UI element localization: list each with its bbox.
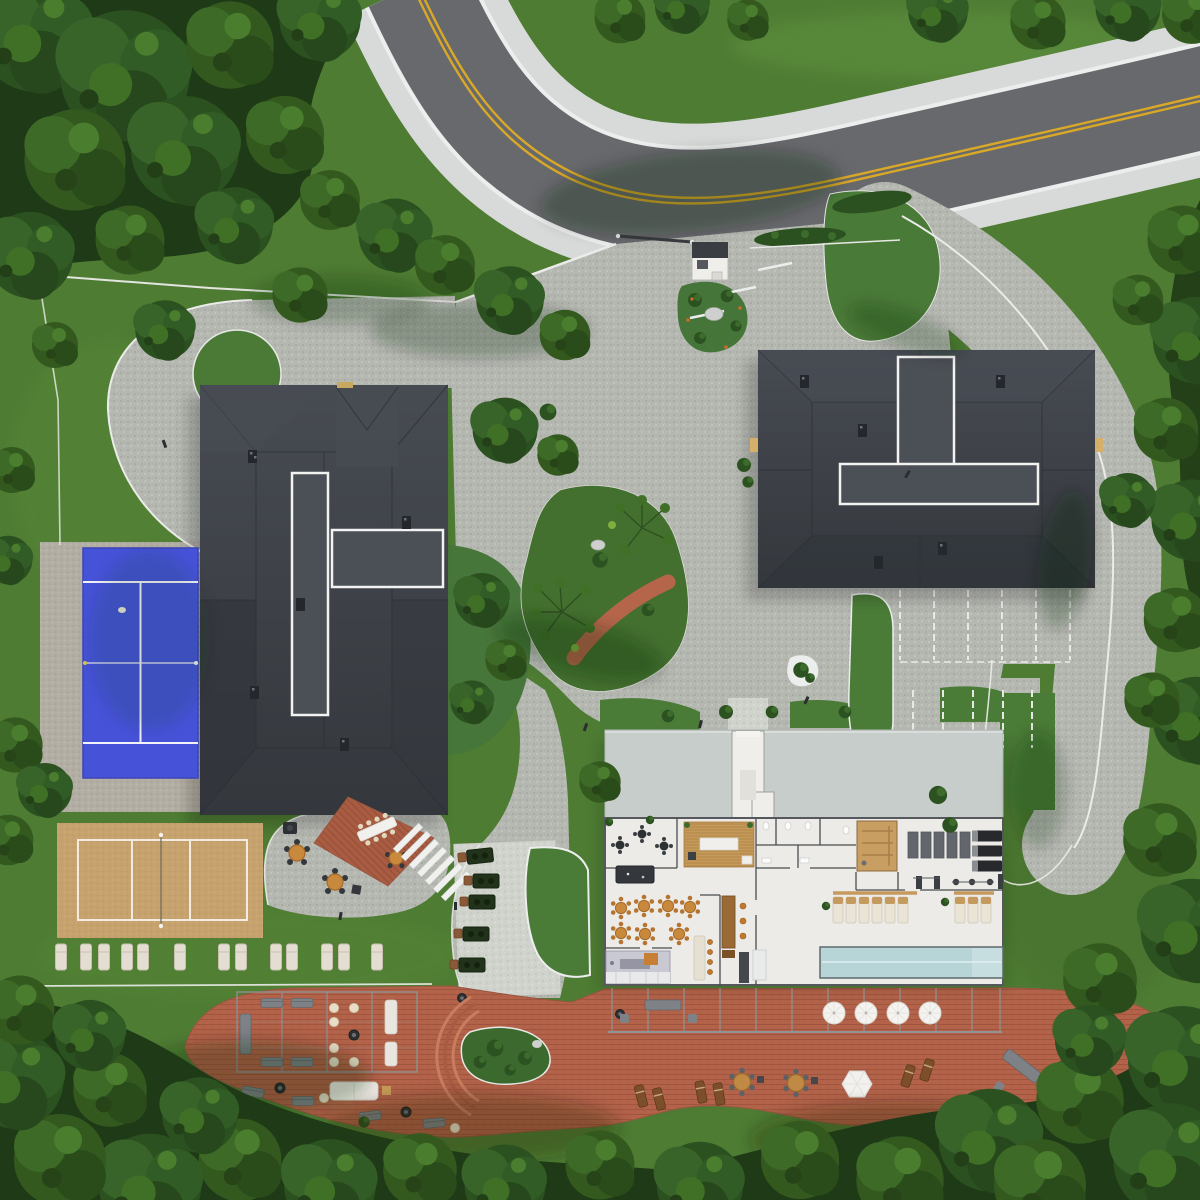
net-post (159, 924, 163, 928)
lounge-chair (122, 944, 133, 970)
reception-desk (700, 838, 738, 850)
volleyball-court (57, 823, 263, 938)
umbrella (823, 1002, 845, 1024)
clubhouse (598, 730, 1008, 1032)
lounge-chair (287, 944, 298, 970)
square-table (351, 884, 361, 894)
lounge-chair (271, 944, 282, 970)
lounge-chair (81, 944, 92, 970)
lounge-chair (236, 944, 247, 970)
billiards-table (616, 866, 654, 883)
lounge-chair (56, 944, 67, 970)
refrigerator (753, 950, 766, 980)
umbrella (887, 1002, 909, 1024)
counter-island (694, 936, 705, 980)
boulder (591, 540, 605, 550)
lounge-chair (372, 944, 383, 970)
lounge-chair (219, 944, 230, 970)
east-end-deck (1095, 438, 1103, 452)
west-roof-notch (336, 387, 398, 467)
boulder (705, 308, 723, 321)
spa-loungers (822, 893, 994, 923)
lounge-chair (175, 944, 186, 970)
west-end-deck (750, 438, 758, 452)
west-flat-roof-horizontal (332, 530, 443, 587)
site-plan-canvas (0, 0, 1200, 1200)
clubhouse-roof (605, 730, 1003, 818)
side-table (382, 1086, 391, 1095)
daybed (385, 1042, 397, 1066)
west-building (200, 382, 448, 815)
east-flat-roof-horizontal (840, 464, 1038, 504)
reception-chair (688, 852, 696, 860)
east-flat-roof-vertical (898, 357, 954, 465)
sauna (857, 821, 897, 871)
reception (684, 822, 754, 867)
lounge-chair (339, 944, 350, 970)
site-plan-rendering (0, 0, 1200, 1200)
guard-house (692, 242, 728, 280)
indoor-lap-pool (820, 947, 1003, 978)
lounge-chair (322, 944, 333, 970)
lounge-chair (138, 944, 149, 970)
patio-grill (283, 822, 297, 834)
lounge-chair (99, 944, 110, 970)
wood-beam (337, 382, 353, 388)
clubhouse-entry-walk (728, 698, 768, 732)
kitchen (606, 951, 670, 983)
umbrella (855, 1002, 877, 1024)
clubhouse-interior (605, 816, 1003, 985)
appliance-column (739, 952, 749, 983)
west-flat-roof-vertical (292, 473, 328, 715)
daybed (385, 1000, 397, 1034)
umbrella (919, 1002, 941, 1024)
net-post (83, 661, 87, 665)
boulder (532, 1040, 542, 1048)
guard-house-roof (692, 242, 728, 258)
lawn-strip-east (849, 594, 893, 749)
net-post (159, 833, 163, 837)
